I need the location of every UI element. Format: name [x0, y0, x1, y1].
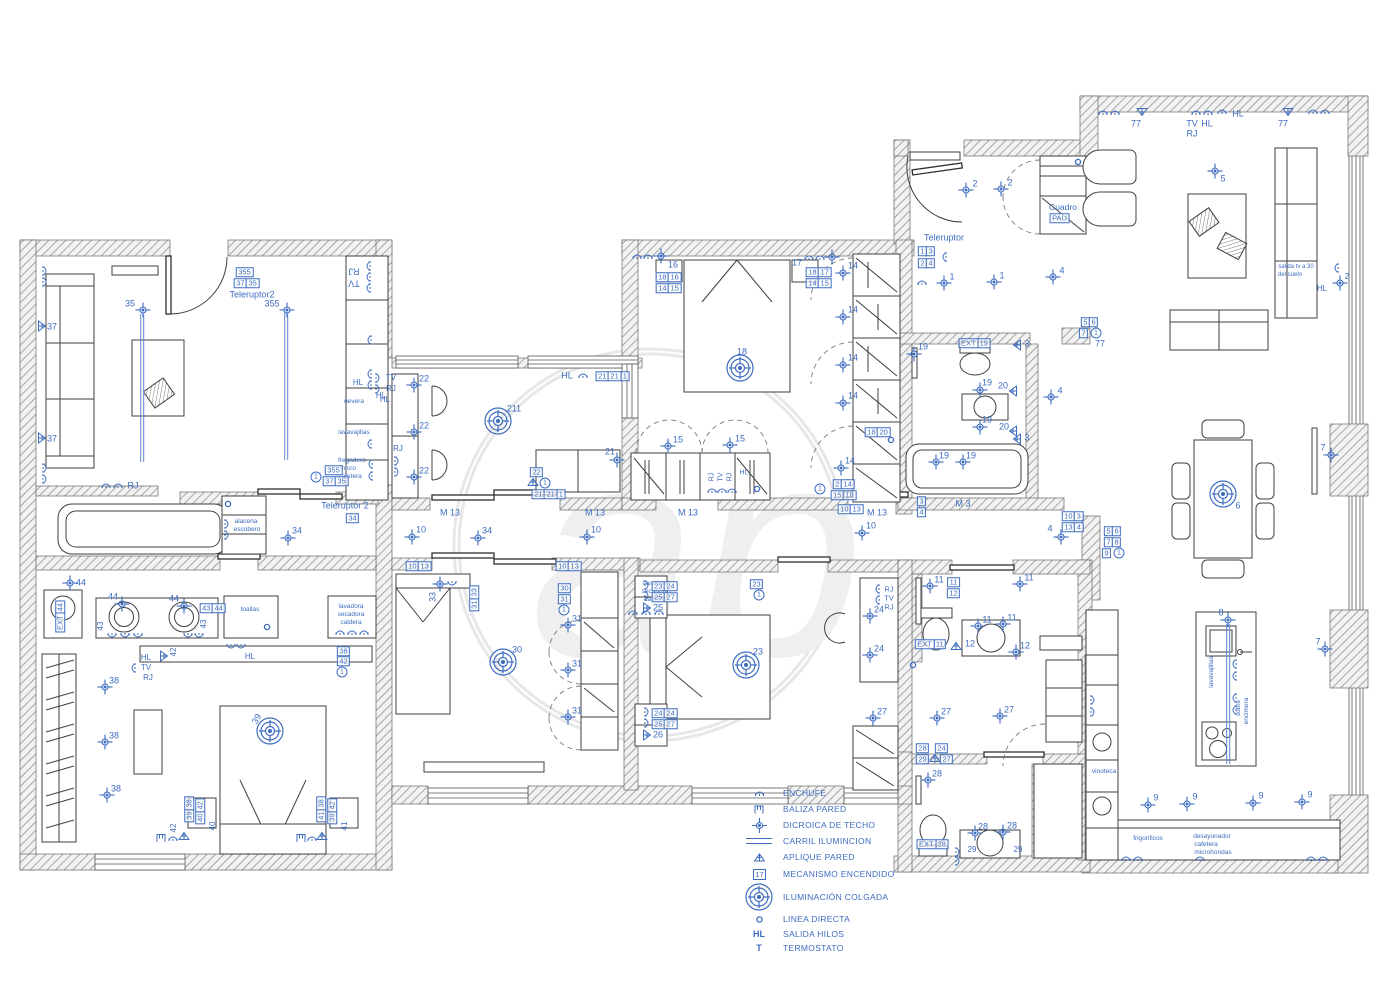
direct-line-icon	[225, 501, 232, 510]
switch-id-box: 3735	[323, 476, 348, 486]
annotations-layer: 3553735Teleruptor2353553737RJRJTVHLHLnev…	[0, 0, 1400, 1000]
plan-label: 10	[866, 522, 876, 531]
socket-icon	[133, 630, 144, 640]
socket-icon	[359, 628, 370, 638]
wall-sconce-icon	[36, 433, 47, 444]
plan-label: 29	[1014, 846, 1023, 854]
socket-icon	[727, 486, 738, 496]
legend-label: LINEA DIRECTA	[783, 914, 850, 924]
plan-label: desayunador	[1193, 834, 1231, 841]
plan-label: Cuadro	[1049, 203, 1077, 212]
plan-label: 27	[1004, 706, 1014, 715]
dicroica-icon	[742, 818, 776, 833]
socket-icon	[641, 591, 651, 602]
plan-label: escobero	[234, 527, 261, 534]
enchufe-icon	[742, 789, 776, 797]
ceiling-light-icon	[115, 597, 130, 614]
switch-id-box: 30	[558, 583, 570, 593]
switch-id-box: PAU	[1050, 213, 1069, 223]
ext-switch-box: EXT44	[55, 602, 65, 633]
socket-icon	[372, 384, 382, 395]
legend-label: APLIQUE PARED	[783, 852, 855, 862]
mecanismo-icon: 17	[742, 869, 776, 880]
wall-sconce-icon	[158, 651, 169, 662]
plan-label: vinoteca	[1092, 769, 1116, 776]
plan-label: salida tv a 30	[1278, 264, 1313, 270]
plan-label: 40	[209, 822, 217, 831]
plan-label: 7	[1320, 444, 1325, 453]
plan-label: 7	[1315, 638, 1320, 647]
plan-label: TV	[348, 279, 360, 288]
socket-icon	[194, 630, 205, 640]
plan-label: encimera	[1244, 698, 1251, 725]
direct-line-icon	[264, 624, 271, 633]
plan-label: 9	[1153, 794, 1158, 803]
wall-sconce-icon	[179, 832, 190, 843]
legend-item-directa: LINEA DIRECTA	[742, 912, 850, 926]
socket-icon	[940, 252, 950, 263]
switch-id-box: 22	[530, 467, 542, 477]
legend-item-termostato: TTERMOSTATO	[742, 941, 844, 955]
switch-id-circle: 1	[1114, 548, 1125, 559]
legend: ENCHUFEBALIZA PAREDDICROICA DE TECHOCARR…	[742, 782, 982, 962]
switch-id-box: 1013	[406, 561, 431, 571]
plan-label: 20	[999, 423, 1009, 432]
ceiling-light-icon	[407, 378, 422, 395]
plan-label: HL	[353, 379, 363, 387]
plan-label: 2	[1345, 273, 1349, 281]
plan-label: 12	[965, 640, 975, 649]
ceiling-light-icon	[825, 250, 840, 267]
ceiling-light-icon	[433, 577, 448, 594]
switch-id-box: 1415	[806, 278, 831, 288]
plan-label: 20	[998, 382, 1008, 391]
colgada-icon	[742, 882, 776, 912]
plan-label: 38	[109, 677, 119, 686]
socket-icon	[39, 474, 49, 485]
plan-label: 34	[482, 527, 492, 536]
socket-icon	[643, 252, 654, 262]
ceiling-light-icon	[407, 470, 422, 487]
socket-icon	[1217, 107, 1228, 117]
switch-id-box: 2527	[652, 592, 677, 602]
plan-label: 44	[76, 579, 86, 588]
hl-icon: HL	[742, 929, 776, 939]
plan-label: cafetera	[1194, 842, 1218, 849]
switch-id-box: 3	[917, 496, 925, 506]
plan-label: 211	[507, 405, 521, 414]
plan-label: TV	[141, 664, 151, 672]
switch-id-box: 42	[337, 656, 349, 666]
socket-icon	[628, 608, 639, 618]
direct-line-icon	[754, 486, 761, 495]
plan-label: 355	[264, 300, 279, 309]
socket-icon	[1110, 108, 1121, 118]
plan-label: 11	[982, 616, 991, 625]
plan-label: 11	[1024, 574, 1033, 583]
plan-label: HL	[141, 654, 151, 662]
plan-label: 12	[1020, 642, 1030, 651]
socket-icon	[364, 261, 374, 272]
legend-item-colgada: ILUMINACIÓN COLGADA	[742, 890, 888, 904]
plan-label: 28	[932, 770, 942, 779]
switch-id-box: 27	[940, 754, 952, 764]
plan-label: 4	[1047, 525, 1052, 534]
wall-sconce-icon	[1009, 386, 1020, 397]
switch-id-box: 4344	[200, 603, 225, 613]
socket-icon	[101, 481, 112, 491]
socket-icon	[120, 630, 131, 640]
socket-icon	[1087, 707, 1097, 718]
socket-icon	[107, 630, 118, 640]
socket-icon	[364, 272, 374, 283]
plan-label: 11	[934, 576, 943, 585]
plan-label: 9	[1307, 791, 1312, 800]
switch-id-circle: 1	[559, 605, 570, 616]
ceiling-light-icon	[177, 599, 192, 616]
switch-id-box: 78	[1104, 537, 1120, 547]
legend-item-hl: HLSALIDA HILOS	[742, 927, 844, 941]
direct-line-icon	[888, 437, 895, 446]
switch-id-box: 2424	[652, 708, 677, 718]
plan-label: 43	[200, 620, 208, 629]
direct-line-icon	[910, 662, 917, 671]
wall-sconce-icon	[641, 603, 652, 614]
plan-label: 16	[668, 261, 678, 270]
plan-label: 10	[416, 526, 426, 535]
switch-id-box: 1013	[556, 561, 581, 571]
plan-label: HL	[1317, 285, 1327, 293]
plan-label: M 13	[440, 509, 460, 518]
socket-icon	[1318, 854, 1329, 864]
legend-label: ILUMINACIÓN COLGADA	[783, 892, 888, 902]
switch-id-box: 214	[833, 479, 854, 489]
legend-item-carril: CARRIL ILUMINCION	[742, 834, 871, 848]
socket-icon	[391, 467, 401, 478]
socket-icon	[168, 834, 179, 844]
plan-label: 1	[949, 273, 954, 282]
socket-icon	[39, 277, 49, 288]
direct-line-icon	[1075, 159, 1082, 168]
switch-id-box: 134	[1062, 522, 1083, 532]
socket-icon	[39, 463, 49, 474]
plan-label: del suelo	[1278, 272, 1302, 278]
ceiling-light-icon	[959, 183, 974, 200]
plan-label: M 13	[678, 509, 698, 518]
ceiling-light-icon	[661, 439, 676, 456]
legend-label: SALIDA HILOS	[783, 929, 844, 939]
plan-label: 37	[47, 435, 57, 444]
switch-id-box: 56	[1104, 526, 1120, 536]
socket-icon	[1087, 695, 1097, 706]
plan-label: 42	[170, 824, 178, 833]
plan-label: fregadero	[338, 458, 366, 465]
switch-id-box: 23	[750, 579, 762, 589]
ext-switch-box: EXT11	[915, 639, 945, 649]
socket-icon	[366, 471, 376, 482]
plan-label: 1	[999, 272, 1004, 281]
legend-label: BALIZA PARED	[783, 804, 846, 814]
plan-label: caldera	[340, 620, 361, 627]
switch-id-box: 2324	[652, 581, 677, 591]
plan-label: 77	[1278, 120, 1288, 129]
switch-id-box: 24	[918, 258, 934, 268]
plan-label: RJ	[884, 603, 893, 611]
plan-label: 9	[1192, 793, 1197, 802]
ext-switch-box: EXT19	[959, 338, 990, 348]
socket-icon	[183, 630, 194, 640]
switch-id-box: 3133	[469, 587, 479, 612]
plan-label: 3	[1024, 434, 1029, 443]
socket-icon	[1133, 854, 1144, 864]
socket-icon	[39, 266, 49, 277]
switch-id-box: 29	[916, 754, 928, 764]
switch-id-box: 7	[1079, 328, 1087, 338]
legend-item-baliza: BALIZA PARED	[742, 802, 846, 816]
socket-icon	[632, 252, 643, 262]
plan-label: 38	[111, 785, 121, 794]
legend-label: TERMOSTATO	[783, 943, 844, 953]
plan-label: TV	[386, 374, 396, 382]
socket-icon	[221, 530, 231, 541]
plan-label: M 13	[585, 509, 605, 518]
switch-id-circle: 1	[337, 667, 348, 678]
socket-icon	[1195, 854, 1206, 864]
legend-item-mecanismo: 17MECANISMO ENCENDIDO	[742, 867, 895, 881]
socket-icon	[578, 371, 589, 381]
socket-icon	[391, 456, 401, 467]
socket-icon	[1203, 108, 1214, 118]
socket-icon	[1308, 107, 1319, 117]
plan-label: HL	[740, 470, 749, 477]
plan-label: 35	[125, 300, 135, 309]
wall-sconce-icon	[528, 478, 539, 489]
socket-icon	[641, 580, 651, 591]
plan-label: 19	[966, 452, 976, 461]
plan-label: 30	[512, 646, 522, 655]
switch-id-box: 56	[1081, 317, 1097, 327]
socket-icon	[1230, 693, 1240, 704]
socket-icon	[129, 663, 139, 674]
plan-label: 26	[653, 731, 663, 740]
plan-label: RJ	[128, 482, 139, 491]
socket-icon	[1332, 263, 1342, 274]
plan-label: micro	[340, 466, 356, 473]
legend-label: DICROICA DE TECHO	[783, 820, 875, 830]
switch-id-box: 355	[325, 465, 342, 475]
switch-id-box: 4138	[316, 798, 326, 823]
plan-label: RJ	[143, 674, 153, 682]
plan-label: TV	[718, 473, 725, 482]
plan-label: 34	[292, 527, 302, 536]
plan-label: RJ	[727, 473, 734, 482]
socket-icon	[1098, 108, 1109, 118]
switch-id-box: 3735	[234, 278, 259, 288]
plan-label: RJ	[884, 585, 893, 593]
socket-icon	[1230, 671, 1240, 682]
wall-sconce-icon	[1283, 106, 1294, 117]
plan-label: 33	[429, 592, 438, 602]
wall-sconce-icon	[36, 321, 47, 332]
plan-label: 2	[972, 180, 977, 189]
ceiling-light-icon	[1044, 390, 1059, 407]
switch-id-box: 355	[236, 267, 253, 277]
legend-item-dicroica: DICROICA DE TECHO	[742, 818, 875, 832]
switch-id-circle: 1	[815, 484, 826, 495]
socket-icon	[335, 628, 346, 638]
plan-label: HL	[1201, 120, 1213, 129]
plan-label: toallas	[241, 607, 260, 614]
plan-label: 42	[170, 648, 178, 657]
plan-label: TV	[1186, 120, 1198, 129]
socket-icon	[1320, 107, 1331, 117]
socket-icon	[641, 707, 651, 718]
plan-label: 24	[874, 606, 884, 615]
plan-label: 77	[1131, 120, 1141, 129]
ceiling-light-icon	[723, 438, 738, 455]
wall-sconce-icon	[1013, 434, 1024, 445]
ceiling-light-icon	[654, 249, 669, 266]
wall-beacon-icon	[156, 834, 166, 845]
plan-label: lavavajillas	[338, 430, 369, 437]
wall-sconce-icon	[641, 730, 652, 741]
plan-label: HL	[561, 372, 573, 381]
wall-sconce-icon	[1137, 106, 1148, 117]
socket-icon	[1230, 659, 1240, 670]
plan-label: Teleruptor 2	[321, 502, 369, 511]
plan-label: 9	[1258, 792, 1263, 801]
light-track	[284, 312, 288, 460]
plan-label: RJ	[386, 385, 396, 393]
ceiling-light-icon	[1324, 448, 1339, 465]
plan-label: HL	[245, 653, 255, 661]
socket-icon	[1230, 705, 1240, 716]
ceiling-light-icon	[610, 453, 625, 470]
socket-icon	[804, 253, 815, 263]
plan-label: RJ	[709, 473, 716, 482]
plan-label: 27	[941, 708, 951, 717]
plan-label: 77	[1095, 340, 1105, 349]
plan-label: 19	[982, 379, 992, 388]
socket-icon	[1306, 854, 1317, 864]
switch-id-box: 38	[337, 646, 349, 656]
plan-label: frigorificos	[1133, 836, 1163, 843]
switch-id-box: 34	[346, 513, 358, 523]
socket-icon	[364, 283, 374, 294]
plan-label: HL	[1232, 110, 1244, 119]
legend-label: CARRIL ILUMINCION	[783, 836, 871, 846]
plan-label: M 13	[867, 509, 887, 518]
plan-label: RJ	[349, 267, 360, 276]
plan-label: 24	[874, 645, 884, 654]
switch-id-box: 4	[917, 507, 925, 517]
plan-label: 10	[591, 526, 601, 535]
ceiling-light-icon	[407, 425, 422, 442]
switch-id-box: 3942	[327, 800, 337, 825]
carril-icon	[742, 838, 776, 844]
ceiling-light-icon	[836, 358, 851, 375]
switch-id-box: 21211	[596, 371, 629, 381]
ceiling-light-icon	[1054, 530, 1069, 547]
ceiling-light-icon	[836, 266, 851, 283]
plan-label: 3	[1024, 340, 1029, 349]
legend-label: ENCHUFE	[783, 788, 826, 798]
switch-id-box: 1820	[865, 427, 890, 437]
switch-id-box: 1816	[656, 272, 681, 282]
plan-label: HL	[380, 396, 390, 404]
plan-label: RJ	[393, 445, 403, 453]
light-track	[140, 314, 144, 462]
wall-sconce-icon	[951, 642, 962, 653]
switch-id-box: 1415	[656, 283, 681, 293]
plan-label: 37	[47, 323, 57, 332]
switch-id-box: 9	[1102, 548, 1110, 558]
aplique-icon	[742, 853, 776, 862]
switch-id-box: 21211	[532, 489, 565, 499]
directa-icon	[742, 916, 776, 923]
socket-icon	[113, 481, 124, 491]
socket-icon	[447, 578, 458, 588]
socket-icon	[221, 519, 231, 530]
legend-label: MECANISMO ENCENDIDO	[783, 869, 895, 879]
socket-icon	[641, 718, 651, 729]
socket-icon	[366, 459, 376, 470]
wall-beacon-icon	[296, 834, 306, 845]
plan-label: Teleruptor	[924, 234, 964, 243]
plan-label: lavavajillas	[1209, 656, 1216, 687]
switch-id-box: 13	[918, 246, 934, 256]
switch-id-box: 31	[558, 594, 570, 604]
plan-label: 19	[982, 416, 992, 425]
switch-id-circle: 1	[1091, 328, 1102, 339]
plan-label: alacena	[235, 519, 258, 526]
wall-sconce-icon	[317, 832, 328, 843]
termostato-icon: T	[742, 943, 776, 953]
switch-id-box: 24	[935, 743, 947, 753]
switch-id-box: 1518	[831, 490, 856, 500]
plan-label: secadora	[338, 612, 365, 619]
ceiling-light-icon	[994, 182, 1009, 199]
switch-id-box: 28	[916, 743, 928, 753]
switch-id-box: 103	[1062, 511, 1083, 521]
plan-label: TV	[884, 594, 894, 602]
plan-label: 2	[1007, 179, 1012, 188]
plan-label: 19	[939, 452, 949, 461]
switch-id-box: 11	[947, 577, 959, 587]
plan-label: 4	[1059, 267, 1064, 276]
hanging-light-icon	[1208, 479, 1238, 511]
socket-icon	[917, 278, 928, 288]
hanging-light-icon	[725, 353, 755, 385]
ceiling-light-icon	[1046, 270, 1061, 287]
switch-id-circle: 1	[754, 590, 765, 601]
switch-id-box: 1013	[838, 504, 863, 514]
plan-label: 25	[653, 604, 663, 613]
ceiling-light-icon	[907, 347, 922, 364]
plan-label: 38	[109, 732, 119, 741]
floor-plan-page: ap	[0, 0, 1400, 1000]
switch-id-box: 12	[947, 588, 959, 598]
plan-label: 31	[572, 615, 582, 624]
socket-icon	[347, 628, 358, 638]
ceiling-light-icon	[834, 461, 849, 478]
socket-icon	[1191, 108, 1202, 118]
plan-label: 6	[1235, 502, 1240, 511]
plan-label: M 3	[955, 500, 970, 509]
plan-label: 23	[753, 648, 763, 657]
switch-id-box: 2527	[652, 719, 677, 729]
plan-label: 31	[572, 660, 582, 669]
